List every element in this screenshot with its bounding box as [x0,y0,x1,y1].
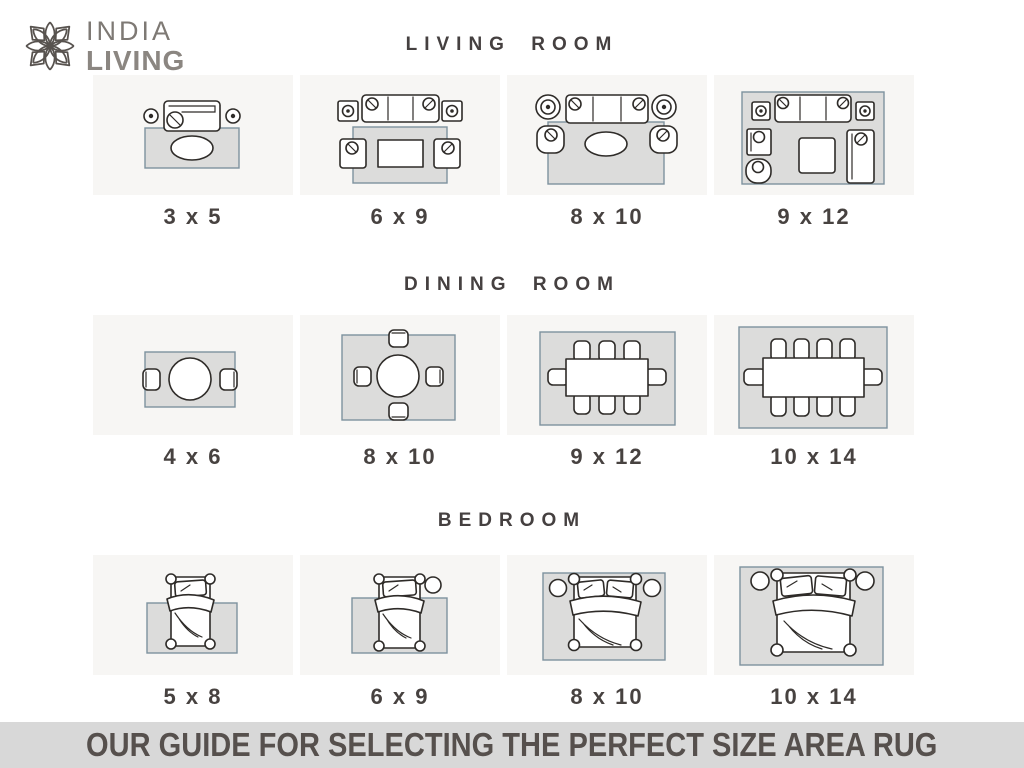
size-label: 4 x 6 [93,444,293,470]
rug-panel-bedroom-6x9: 6 x 9 [300,555,500,710]
rug-panel-dining-10x14: 10 x 14 [714,315,914,470]
diagram-living-9x12 [714,75,914,195]
size-label: 10 x 14 [714,444,914,470]
size-label: 8 x 10 [507,684,707,710]
living-room-panels-row: 3 x 5 [93,75,914,230]
size-label: 3 x 5 [93,204,293,230]
rug-panel-living-8x10: 8 x 10 [507,75,707,230]
rug-panel-bedroom-10x14: 10 x 14 [714,555,914,710]
diagram-dining-10x14 [714,315,914,435]
diagram-dining-4x6 [93,315,293,435]
rug-panel-dining-8x10: 8 x 10 [300,315,500,470]
diagram-living-6x9 [300,75,500,195]
rug-panel-living-9x12: 9 x 12 [714,75,914,230]
diagram-living-8x10 [507,75,707,195]
section-title-bedroom: BEDROOM [0,510,1024,532]
dining-room-panels-row: 4 x 6 8 x 10 [93,315,914,470]
size-label: 9 x 12 [714,204,914,230]
size-label: 5 x 8 [93,684,293,710]
bedroom-panels-row: 5 x 8 6 x 9 [93,555,914,710]
diagram-living-3x5 [93,75,293,195]
footer-bar: OUR GUIDE FOR SELECTING THE PERFECT SIZE… [0,722,1024,768]
rug-panel-dining-4x6: 4 x 6 [93,315,293,470]
size-label: 6 x 9 [300,684,500,710]
rug-panel-dining-9x12: 9 x 12 [507,315,707,470]
diagram-bedroom-8x10 [507,555,707,675]
size-label: 8 x 10 [507,204,707,230]
rug-panel-living-3x5: 3 x 5 [93,75,293,230]
footer-text: OUR GUIDE FOR SELECTING THE PERFECT SIZE… [86,726,937,764]
rug-panel-bedroom-5x8: 5 x 8 [93,555,293,710]
section-title-dining-room: DINING ROOM [0,274,1024,296]
diagram-dining-9x12 [507,315,707,435]
diagram-dining-8x10 [300,315,500,435]
section-title-living-room: LIVING ROOM [0,34,1024,56]
rug-size-guide-infographic: INDIA LIVING LIVING ROOM DINING ROOM BED… [0,0,1024,768]
size-label: 10 x 14 [714,684,914,710]
rug-panel-living-6x9: 6 x 9 [300,75,500,230]
diagram-bedroom-10x14 [714,555,914,675]
size-label: 9 x 12 [507,444,707,470]
rug-panel-bedroom-8x10: 8 x 10 [507,555,707,710]
diagram-bedroom-5x8 [93,555,293,675]
size-label: 6 x 9 [300,204,500,230]
size-label: 8 x 10 [300,444,500,470]
diagram-bedroom-6x9 [300,555,500,675]
